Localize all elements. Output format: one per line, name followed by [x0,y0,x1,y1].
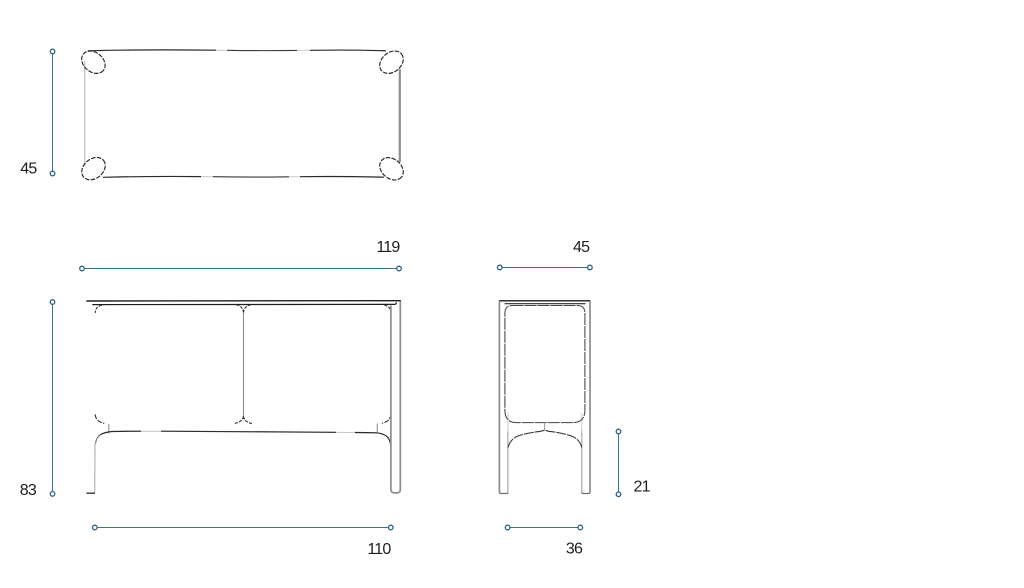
svg-text:36: 36 [566,540,583,557]
svg-text:45: 45 [20,161,37,178]
svg-text:119: 119 [376,239,400,256]
svg-text:21: 21 [634,478,651,495]
svg-text:83: 83 [20,482,37,499]
svg-text:110: 110 [367,541,391,558]
svg-text:45: 45 [573,239,590,256]
